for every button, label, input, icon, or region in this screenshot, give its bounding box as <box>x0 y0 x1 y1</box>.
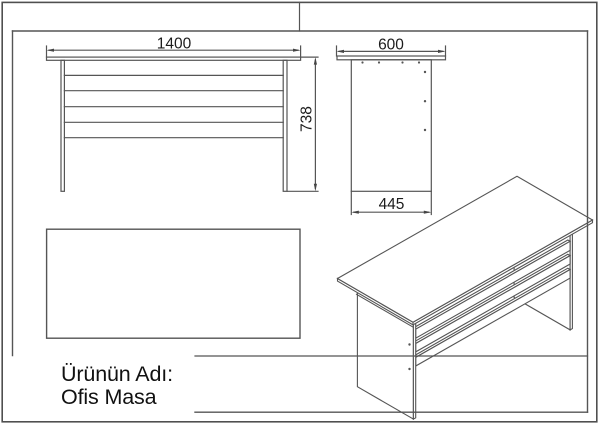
svg-text:1400: 1400 <box>157 36 192 53</box>
svg-text:738: 738 <box>299 106 316 132</box>
svg-text:Ofis Masa: Ofis Masa <box>61 385 157 409</box>
svg-text:445: 445 <box>379 196 405 213</box>
svg-text:Ürünün Adı:: Ürünün Adı: <box>61 362 173 386</box>
svg-text:600: 600 <box>378 37 404 54</box>
